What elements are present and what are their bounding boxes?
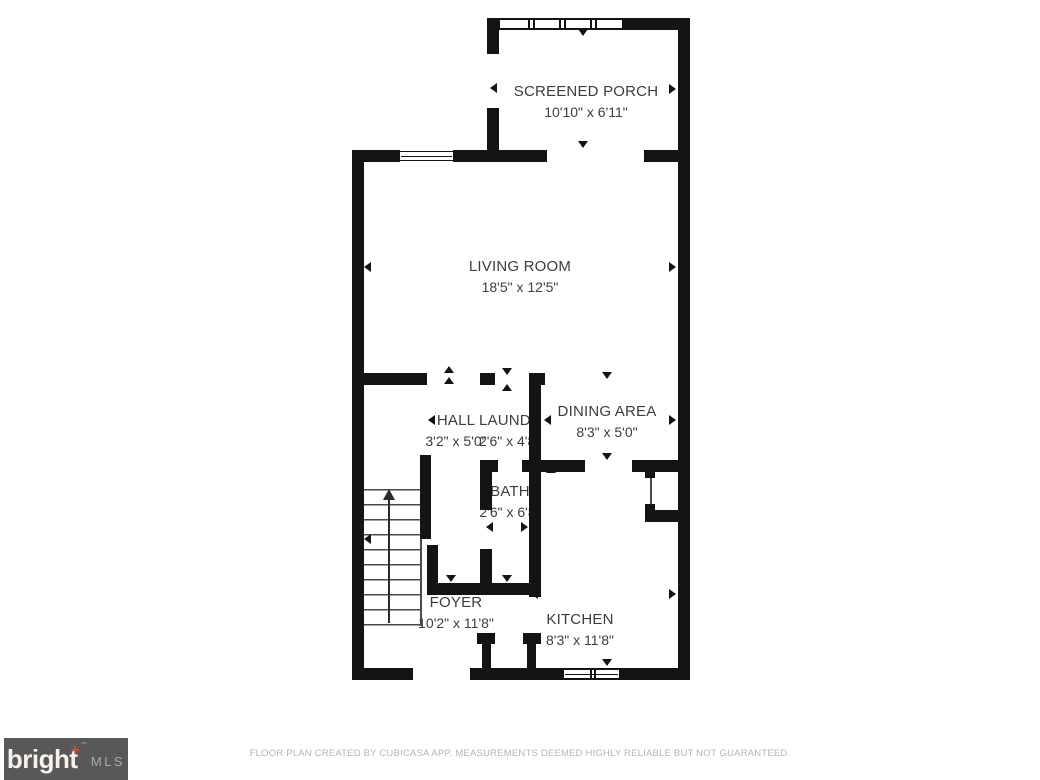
door-marker-icon [502, 368, 512, 375]
room-dims: 2'6" x 4'8" [479, 433, 533, 450]
measure-arrow-icon [364, 262, 371, 272]
room-label-kitchen: KITCHEN 8'3" x 11'8" [546, 611, 614, 649]
wall [522, 460, 541, 472]
measure-arrow-icon [364, 534, 371, 544]
room-label-laundry: LAUNDRY 2'6" x 4'8" [479, 412, 533, 452]
window-mullion [590, 20, 592, 28]
door-marker-icon [578, 141, 588, 148]
room-name: KITCHEN [546, 611, 614, 629]
window-mullion [564, 20, 566, 28]
room-label-dining-area: DINING AREA 8'3" x 5'0" [558, 403, 657, 441]
measure-arrow-icon [490, 83, 497, 93]
porch-window-band [499, 19, 623, 29]
stair-up-arrow-icon [383, 489, 395, 500]
measure-arrow-icon [669, 262, 676, 272]
wall [632, 460, 678, 472]
wall [352, 668, 413, 680]
measure-arrow-icon [669, 84, 676, 94]
wall [453, 150, 547, 162]
measure-arrow-icon [669, 589, 676, 599]
measure-arrow-icon [486, 522, 493, 532]
wall [678, 18, 690, 680]
door-marker-icon [602, 453, 612, 460]
wall [644, 150, 690, 162]
room-name: FOYER [418, 594, 494, 612]
disclaimer-text: FLOOR PLAN CREATED BY CUBICASA APP. MEAS… [250, 748, 791, 759]
logo-plus-icon: + [71, 742, 80, 760]
wall [420, 455, 431, 539]
logo-trademark: ™ [81, 742, 87, 748]
floor-plan: SCREENED PORCH 10'10" x 6'11" LIVING ROO… [0, 0, 1040, 780]
window-mullion [594, 670, 596, 678]
door-marker-icon [514, 155, 524, 162]
measure-arrow-icon [531, 589, 538, 599]
room-name: SCREENED PORCH [514, 83, 659, 101]
door-marker-icon [502, 575, 512, 582]
wall [477, 633, 495, 644]
kitchen-window [563, 669, 620, 679]
wall [645, 510, 690, 522]
wall [427, 545, 438, 583]
door-marker-icon [446, 575, 456, 582]
room-dims: 18'5" x 12'5" [469, 279, 571, 296]
door-marker-icon [444, 377, 454, 384]
window-mullion [528, 20, 530, 28]
door-marker-icon [602, 372, 612, 379]
window-mullion [533, 20, 535, 28]
wall [523, 633, 541, 644]
wall [529, 373, 541, 597]
measure-arrow-icon [544, 415, 551, 425]
wall [480, 373, 495, 385]
door-marker-icon [602, 659, 612, 666]
measure-arrow-icon [428, 415, 435, 425]
window-midline [565, 674, 618, 675]
measure-arrow-icon [669, 415, 676, 425]
room-dims: 3'2" x 5'0" [425, 433, 486, 450]
room-label-living-room: LIVING ROOM 18'5" x 12'5" [469, 258, 571, 296]
window-mullion [595, 20, 597, 28]
stair-run-line [388, 497, 390, 623]
room-name: LIVING ROOM [469, 258, 571, 276]
room-dims: 8'3" x 5'0" [558, 424, 657, 441]
room-name: LAUNDRY [479, 412, 533, 430]
wall [487, 18, 499, 54]
door-marker-icon [578, 29, 588, 36]
closet-door-line [650, 478, 652, 506]
door-marker-icon [546, 466, 556, 473]
wall [352, 150, 364, 680]
room-label-foyer: FOYER 10'2" x 11'8" [418, 594, 494, 632]
wall [482, 644, 491, 670]
logo-suffix-text: MLS [91, 754, 125, 769]
wall [427, 583, 541, 595]
door-marker-icon [444, 366, 454, 373]
measure-arrow-icon [521, 522, 528, 532]
brightmls-logo: bright+™MLS [4, 738, 128, 780]
wall [527, 644, 536, 670]
wall [645, 472, 655, 478]
room-name: DINING AREA [558, 403, 657, 421]
room-label-screened-porch: SCREENED PORCH 10'10" x 6'11" [514, 83, 659, 121]
wall [352, 373, 427, 385]
living-room-window [399, 151, 454, 161]
room-dims: 8'3" x 11'8" [546, 632, 614, 649]
door-marker-icon [502, 384, 512, 391]
wall [480, 466, 492, 510]
window-mullion [590, 670, 592, 678]
room-dims: 10'10" x 6'11" [514, 104, 659, 121]
window-midline [401, 156, 452, 157]
staircase [364, 489, 422, 626]
logo-brand-text: bright [7, 744, 78, 775]
window-mullion [559, 20, 561, 28]
room-dims: 10'2" x 11'8" [418, 615, 494, 632]
